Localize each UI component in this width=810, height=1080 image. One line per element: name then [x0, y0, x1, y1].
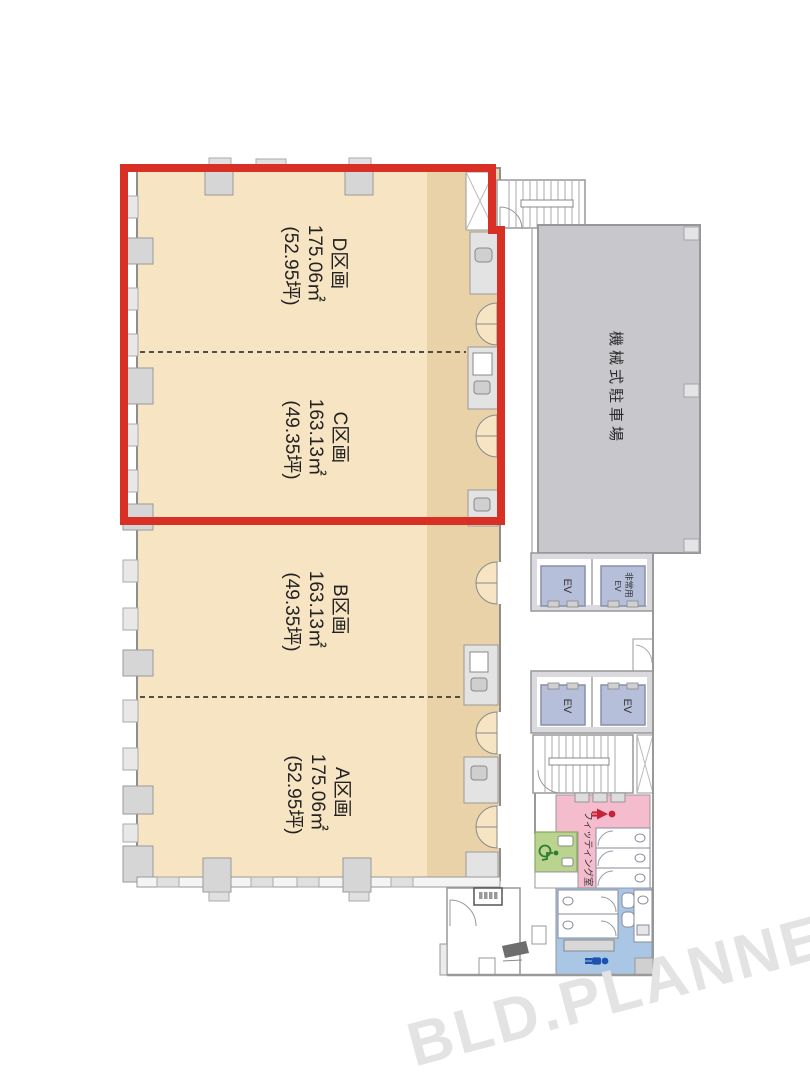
mens-toilet-stalls: [558, 890, 618, 938]
mens-side-room: [634, 890, 652, 942]
wc-lobby: [535, 872, 578, 888]
exterior-stub: [440, 944, 447, 975]
svg-text:フィッティング室: フィッティング室: [582, 811, 594, 886]
floor-plan-page: 機械式駐車場 EV 非常用 EV: [0, 0, 810, 1080]
label-parking: 機械式駐車場: [607, 331, 624, 445]
mens-sink-counter: [564, 940, 614, 951]
elevator-bank-lower: EV EV: [531, 671, 653, 733]
sink-fixture: [532, 926, 546, 944]
label-ev-1: EV: [561, 579, 573, 594]
entry-step: [479, 958, 495, 975]
service-shaft-mid: [633, 639, 653, 675]
toilet-fixture: [558, 836, 573, 846]
stairs-top: [497, 180, 585, 229]
womens-sink-counter: [575, 793, 625, 802]
label-ev-3: EV: [621, 699, 633, 714]
svg-text:機械式駐車場: 機械式駐車場: [607, 331, 624, 445]
service-room: [447, 888, 546, 975]
sink-fixture: [562, 858, 573, 866]
label-ev-2: EV: [561, 699, 573, 714]
womens-toilet-stalls: [596, 828, 650, 888]
elevator-panel-icon: [474, 888, 502, 905]
label-fitting-room: フィッティング室: [582, 811, 594, 886]
stairs-lower: [533, 735, 633, 793]
floor-plan-drawing: 機械式駐車場 EV 非常用 EV: [0, 0, 810, 1080]
elevator-bank-upper: EV 非常用 EV: [531, 553, 653, 611]
duct-shaft-lower: [637, 735, 653, 793]
